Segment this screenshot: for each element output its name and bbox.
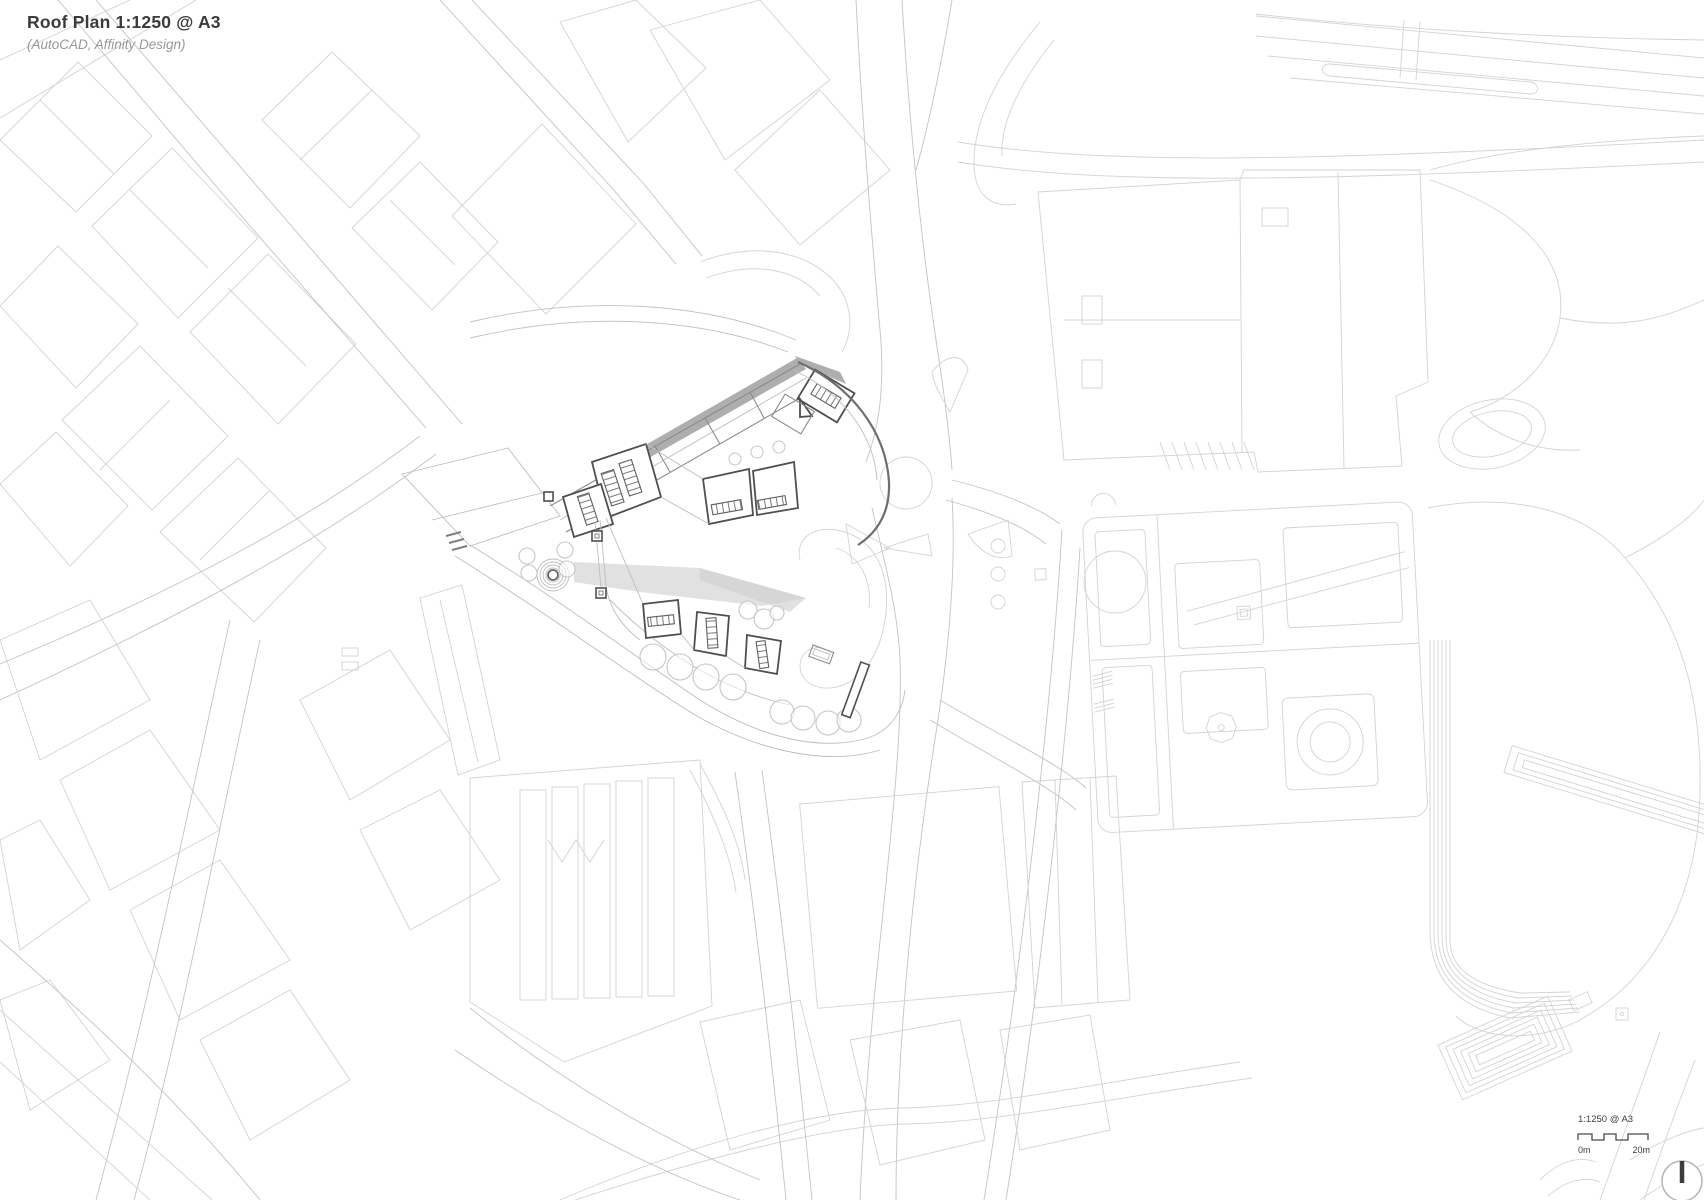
title-block: Roof Plan 1:1250 @ A3 (AutoCAD, Affinity…	[27, 12, 221, 52]
context-bottom-middle-blocks	[690, 764, 1130, 1200]
scale-bar-label: 1:1250 @ A3	[1578, 1114, 1633, 1125]
roof-plan-sheet: Roof Plan 1:1250 @ A3 (AutoCAD, Affinity…	[0, 0, 1704, 1200]
context-roundabout	[846, 358, 1146, 614]
drawing-subtitle: (AutoCAD, Affinity Design)	[27, 37, 221, 52]
north-arrow-icon	[1662, 1161, 1702, 1200]
context-map	[0, 0, 1704, 1200]
scale-bar-zero: 0m	[1578, 1145, 1591, 1155]
site-plan	[402, 356, 905, 757]
context-garden-trees	[991, 539, 1005, 609]
context-streets	[0, 0, 1704, 1200]
scale-bar-rule	[1578, 1134, 1648, 1140]
context-landscape-forms	[799, 529, 1704, 1200]
context-railway	[1256, 14, 1704, 170]
scale-bar: 1:1250 @ A3 0m 20m	[1578, 1114, 1650, 1155]
pavilion-roof	[703, 469, 753, 524]
context-southeast-building	[1428, 500, 1704, 1200]
site-plan-drawing: 1:1250 @ A3 0m 20m	[0, 0, 1704, 1200]
scale-bar-max: 20m	[1632, 1145, 1650, 1155]
context-top-right-complex	[1038, 170, 1704, 478]
drawing-title: Roof Plan 1:1250 @ A3	[27, 12, 221, 33]
context-bottom-left-blocks	[0, 585, 760, 1200]
